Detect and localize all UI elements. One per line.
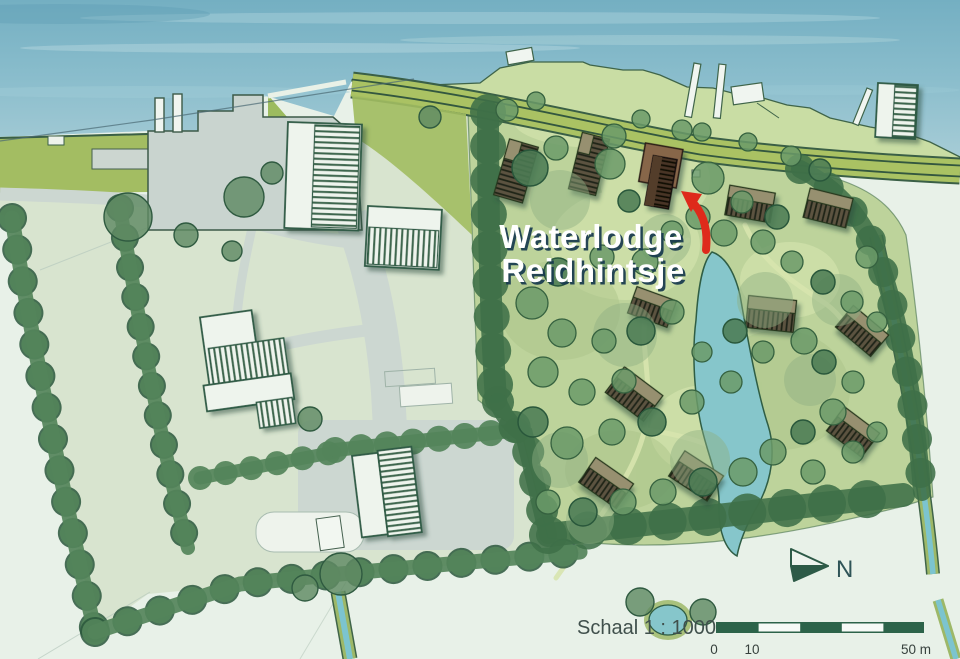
scale-label: Schaal 1 : 1000 xyxy=(577,617,716,639)
north-label: N xyxy=(836,556,853,583)
jetty xyxy=(731,83,764,105)
barn-1 xyxy=(284,122,362,231)
scale-tick-10: 10 xyxy=(744,642,759,657)
pavilion xyxy=(316,516,344,551)
chimney xyxy=(173,94,182,132)
map-canvas: Waterlodge Reidhintsje Waterlodge Reidhi… xyxy=(0,0,960,659)
barn-2 xyxy=(365,206,442,270)
outbuilding xyxy=(352,447,422,540)
shore-barn xyxy=(875,83,918,139)
white-plaza xyxy=(256,512,364,552)
scale-tick-50: 50 m xyxy=(901,642,931,657)
chimney xyxy=(155,98,164,132)
site-plan-map: Waterlodge Reidhintsje Waterlodge Reidhi… xyxy=(0,0,960,659)
title-line2: Reidhintsje xyxy=(501,252,684,289)
title-line1: Waterlodge xyxy=(499,218,682,255)
scale-tick-0: 0 xyxy=(710,642,718,657)
map-title: Waterlodge Reidhintsje Waterlodge Reidhi… xyxy=(499,218,687,292)
